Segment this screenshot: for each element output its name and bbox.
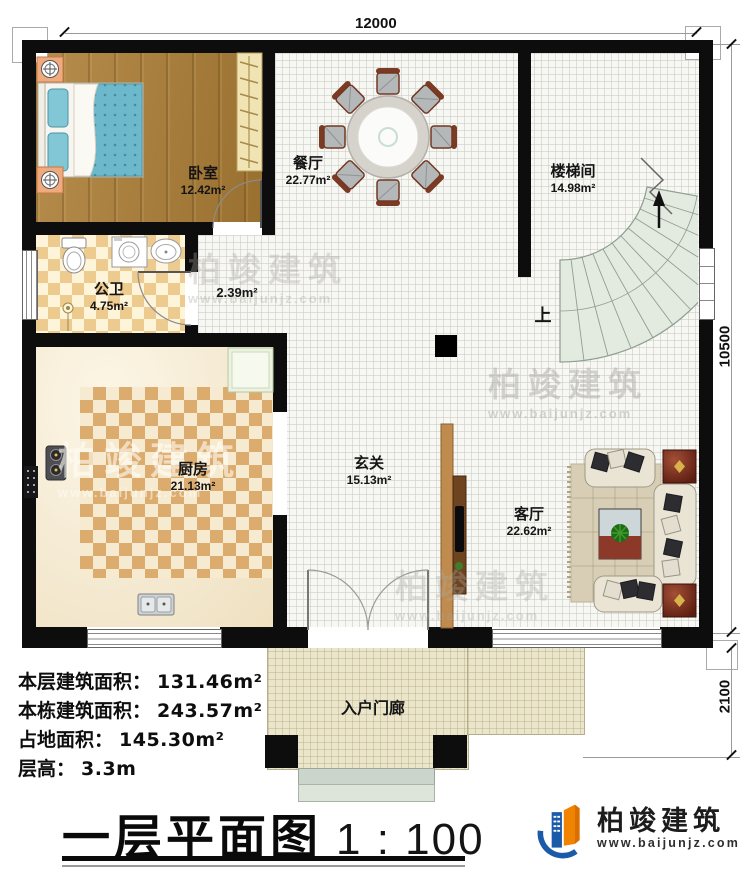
floor-drain	[63, 303, 73, 331]
label-kitchen: 厨房 21.13m²	[171, 461, 216, 493]
dim-height-lower: 2100	[717, 677, 734, 717]
room-area: 12.42m²	[181, 183, 226, 197]
title-underline-thin	[62, 865, 465, 867]
label-foyer: 玄关 15.13m²	[347, 455, 392, 487]
title-underline-thick	[62, 856, 465, 861]
side-table-top	[663, 450, 696, 483]
watermark-url: www.baijunjz.com	[488, 406, 648, 421]
dim-height-upper: 10500	[717, 325, 734, 369]
label-nook: 2.39m²	[216, 285, 257, 301]
kitchen-counter	[228, 348, 273, 392]
info-row: 占地面积：145.30m²	[18, 726, 262, 755]
info-label: 占地面积：	[18, 730, 113, 751]
brand-logo: 柏竣建筑 www.baijunjz.com	[533, 796, 740, 860]
label-porch: 入户门廊	[341, 699, 405, 718]
info-row: 本栋建筑面积：243.57m²	[18, 697, 262, 726]
watermark-url: www.baijunjz.com	[395, 608, 555, 623]
wardrobe	[237, 53, 262, 171]
brand-logo-icon	[533, 796, 589, 860]
stairs-up-text: 上	[535, 306, 552, 326]
dining-table-set	[319, 68, 457, 206]
bathroom-door	[138, 272, 191, 325]
room-area: 4.75m²	[90, 299, 128, 313]
info-value: 3.3m	[81, 758, 136, 780]
washing-machine	[112, 237, 147, 267]
info-value: 243.57m²	[157, 700, 262, 722]
dim-width: 12000	[355, 15, 397, 32]
room-area: 22.77m²	[286, 173, 331, 187]
info-block: 本层建筑面积：131.46m² 本栋建筑面积：243.57m² 占地面积：145…	[18, 668, 262, 784]
nightstand-bottom	[37, 167, 63, 193]
watermark-text: 柏竣建筑	[188, 251, 348, 288]
room-name: 玄关	[347, 455, 392, 473]
room-area: 14.98m²	[550, 181, 595, 195]
brand-name: 柏竣建筑	[597, 806, 740, 836]
wall-vent	[24, 466, 38, 498]
nightstand-top	[37, 57, 63, 82]
side-table-bottom	[663, 584, 696, 617]
room-name: 楼梯间	[550, 163, 595, 181]
room-name: 餐厅	[286, 155, 331, 173]
tv	[455, 506, 464, 552]
info-label: 层高：	[18, 759, 75, 780]
watermark-text: 柏竣建筑	[395, 568, 555, 605]
sofa-set	[569, 449, 696, 617]
label-living: 客厅 22.62m²	[507, 506, 552, 538]
room-name: 入户门廊	[341, 699, 405, 718]
watermark-2: 柏竣建筑 www.baijunjz.com	[488, 358, 648, 421]
brand-url: www.baijunjz.com	[597, 836, 740, 850]
info-value: 131.46m²	[157, 671, 262, 693]
info-label: 本层建筑面积：	[18, 672, 151, 693]
column	[435, 335, 457, 357]
kitchen-sink	[138, 594, 174, 615]
label-bedroom: 卧室 12.42m²	[181, 165, 226, 197]
room-area: 22.62m²	[507, 524, 552, 538]
bed	[38, 83, 143, 177]
room-area: 2.39m²	[216, 285, 257, 301]
room-name: 公卫	[90, 281, 128, 299]
room-name: 厨房	[171, 461, 216, 479]
info-value: 145.30m²	[119, 729, 224, 751]
label-stairwell: 楼梯间 14.98m²	[550, 163, 595, 195]
toilet	[62, 238, 86, 273]
watermark-url: www.baijunjz.com	[188, 291, 348, 306]
info-label: 本栋建筑面积：	[18, 701, 151, 722]
watermark-4: 柏竣建筑 www.baijunjz.com	[395, 560, 555, 623]
watermark-1: 柏竣建筑 www.baijunjz.com	[188, 243, 348, 306]
watermark-text: 柏竣建筑	[488, 366, 648, 403]
floor-plan: 卧室 12.42m² 餐厅 22.77m² 楼梯间 14.98m² 公卫 4.7…	[0, 0, 750, 879]
room-name: 卧室	[181, 165, 226, 183]
info-row: 层高：3.3m	[18, 755, 262, 784]
info-row: 本层建筑面积：131.46m²	[18, 668, 262, 697]
label-dining: 餐厅 22.77m²	[286, 155, 331, 187]
bathroom-sink	[151, 239, 181, 263]
room-area: 21.13m²	[171, 479, 216, 493]
coffee-table	[599, 509, 641, 559]
label-bathroom: 公卫 4.75m²	[90, 281, 128, 313]
label-stairs-up: 上	[535, 306, 552, 326]
room-area: 15.13m²	[347, 473, 392, 487]
room-name: 客厅	[507, 506, 552, 524]
